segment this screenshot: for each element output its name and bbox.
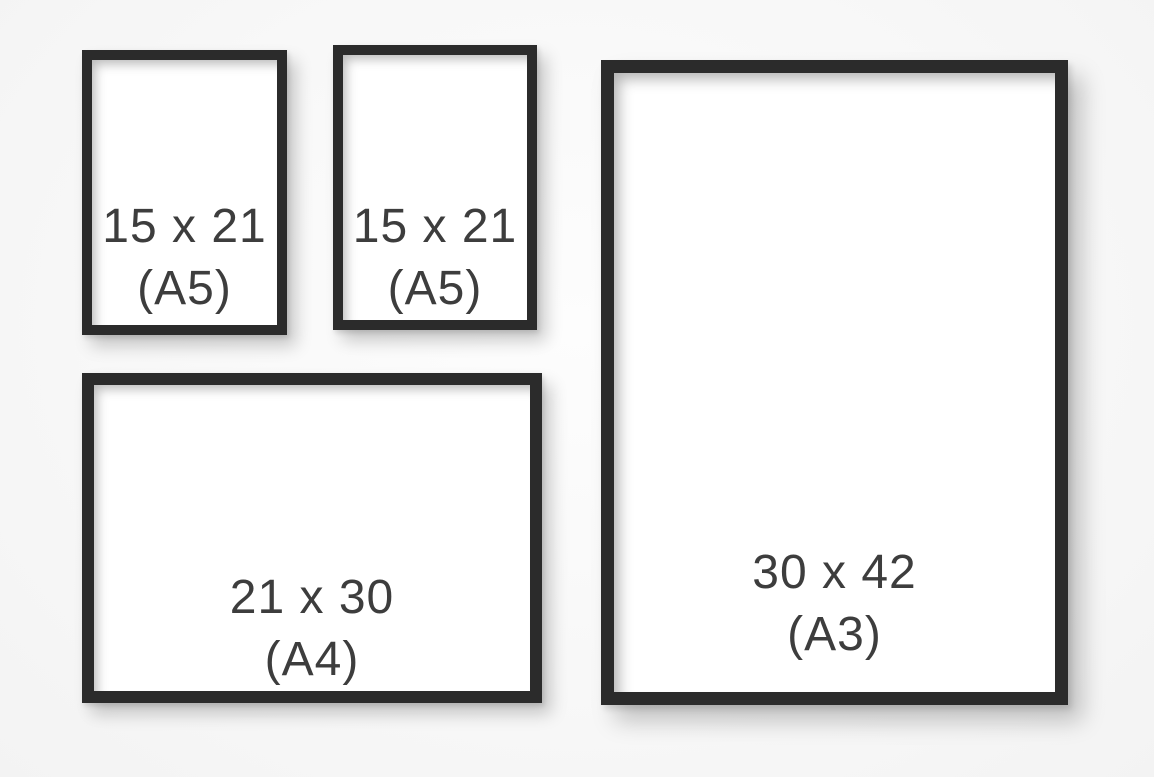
frame-a5-left-paper: 15 x 21 (A5) [92,60,277,325]
frame-a3-label: 30 x 42 (A3) [614,542,1055,666]
frame-a5-left-label: 15 x 21 (A5) [92,196,277,320]
frame-a5-center: 15 x 21 (A5) [333,45,537,330]
frame-a5-left: 15 x 21 (A5) [82,50,287,335]
frame-a5-center-label: 15 x 21 (A5) [343,196,527,320]
format-text: (A5) [92,258,277,320]
frame-size-guide: 15 x 21 (A5) 15 x 21 (A5) 21 x 30 (A4) 3… [0,0,1154,777]
frame-a3: 30 x 42 (A3) [601,60,1068,705]
format-text: (A5) [343,258,527,320]
frame-a4-paper: 21 x 30 (A4) [94,385,530,691]
format-text: (A4) [94,629,530,691]
format-text: (A3) [614,604,1055,666]
size-text: 21 x 30 [94,567,530,629]
frame-a4: 21 x 30 (A4) [82,373,542,703]
size-text: 15 x 21 [343,196,527,258]
frame-a5-center-paper: 15 x 21 (A5) [343,55,527,320]
size-text: 30 x 42 [614,542,1055,604]
frame-a4-label: 21 x 30 (A4) [94,567,530,691]
size-text: 15 x 21 [92,196,277,258]
frame-a3-paper: 30 x 42 (A3) [614,73,1055,692]
